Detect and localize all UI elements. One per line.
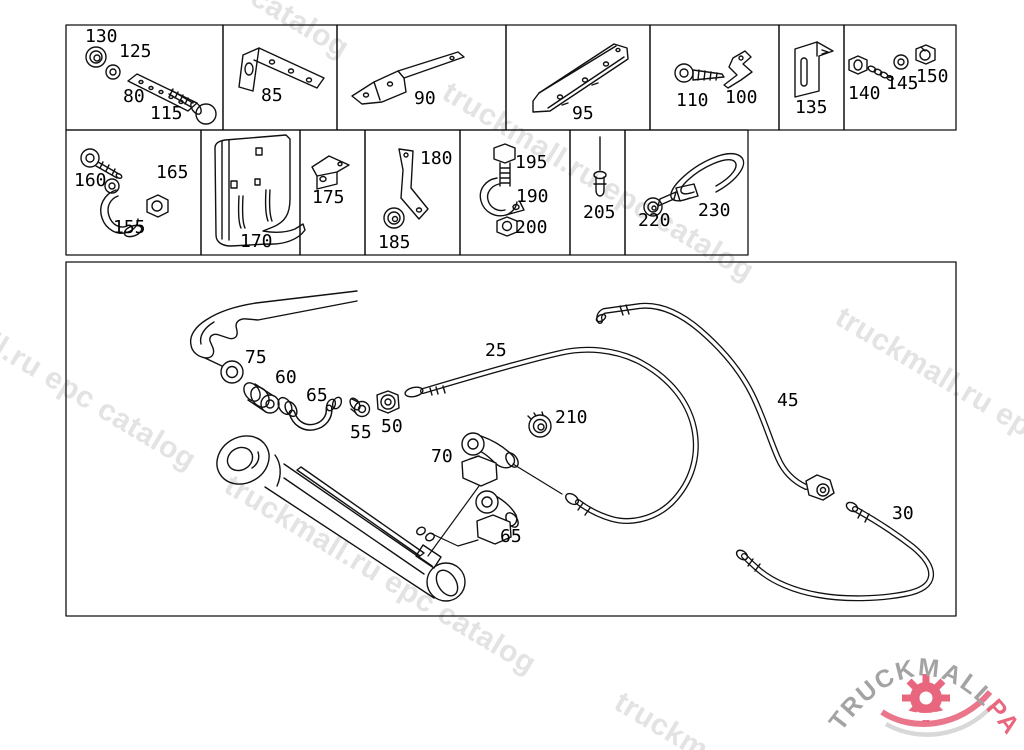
thumbnail-part-number-85-4[interactable]: 85 [261, 87, 283, 105]
diagram-part-number-30-10[interactable]: 30 [892, 505, 914, 523]
nut-55 [348, 396, 370, 416]
thumbnail-part-number-135-9[interactable]: 135 [795, 99, 828, 117]
thumbnail-part-number-175-17[interactable]: 175 [312, 189, 345, 207]
part-icon-110-100 [675, 51, 752, 88]
thumbnail-part-number-230-25[interactable]: 230 [698, 202, 731, 220]
main-diagram-box [66, 262, 956, 616]
diagram-part-number-70-7[interactable]: 70 [431, 448, 453, 466]
hydraulic-cylinder [208, 427, 465, 601]
thumbnail-part-number-205-23[interactable]: 205 [583, 204, 616, 222]
thumbnail-part-number-200-22[interactable]: 200 [515, 219, 548, 237]
parts-box-14 [625, 130, 748, 255]
thumbnail-part-number-190-21[interactable]: 190 [516, 188, 549, 206]
thumbnail-part-number-160-13[interactable]: 160 [74, 172, 107, 190]
part-icon-170 [215, 135, 305, 246]
part-icon-95 [533, 44, 628, 112]
part-icon-175 [312, 156, 349, 189]
thumbnail-part-number-90-5[interactable]: 90 [414, 90, 436, 108]
thumbnail-part-number-130-0[interactable]: 130 [85, 28, 118, 46]
thumbnail-part-number-95-6[interactable]: 95 [572, 105, 594, 123]
thumbnail-part-number-80-2[interactable]: 80 [123, 88, 145, 106]
part-icon-205 [594, 137, 606, 196]
fitting-75-ring [221, 361, 243, 383]
thumbnail-part-number-110-7[interactable]: 110 [676, 92, 709, 110]
thumbnail-part-number-220-24[interactable]: 220 [638, 212, 671, 230]
diagram-part-number-55-3[interactable]: 55 [350, 424, 372, 442]
diagram-part-number-50-4[interactable]: 50 [381, 418, 403, 436]
thumbnail-part-number-155-15[interactable]: 155 [113, 219, 146, 237]
thumbnail-part-number-195-20[interactable]: 195 [515, 154, 548, 172]
diagram-part-number-60-1[interactable]: 60 [275, 369, 297, 387]
thumbnail-part-number-185-19[interactable]: 185 [378, 234, 411, 252]
thumbnail-part-number-145-11[interactable]: 145 [886, 75, 919, 93]
part-icon-135 [795, 42, 833, 97]
epc-catalog-page: truckmall.ru epc catalogtruckmall.ru epc… [0, 0, 1024, 750]
fitting-70-elbow [462, 433, 521, 486]
nut-50 [377, 391, 399, 413]
fitting-60 [241, 380, 279, 413]
diagram-part-number-65-2[interactable]: 65 [306, 387, 328, 405]
diagram-part-number-210-6[interactable]: 210 [555, 409, 588, 427]
thumbnail-part-number-100-8[interactable]: 100 [725, 89, 758, 107]
diagram-part-number-25-5[interactable]: 25 [485, 342, 507, 360]
parts-box-13 [570, 130, 625, 255]
thumbnail-part-number-125-1[interactable]: 125 [119, 43, 152, 61]
diagram-part-number-45-9[interactable]: 45 [777, 392, 799, 410]
parts-box-3 [337, 25, 506, 130]
thumbnail-part-number-170-16[interactable]: 170 [240, 233, 273, 251]
grommet-210 [528, 412, 551, 437]
truckmall-logo[interactable]: TRUCKMALLPARTS [824, 634, 1022, 748]
thumbnail-part-number-140-10[interactable]: 140 [848, 85, 881, 103]
hose-25 [404, 350, 696, 521]
part-icon-90 [352, 52, 464, 104]
thumbnail-part-number-115-3[interactable]: 115 [150, 105, 183, 123]
diagram-part-number-75-0[interactable]: 75 [245, 349, 267, 367]
truckmall-logo-graphic: TRUCKMALLPARTS [824, 634, 1022, 748]
thumbnail-part-number-150-12[interactable]: 150 [916, 68, 949, 86]
thumbnail-part-number-165-14[interactable]: 165 [156, 164, 189, 182]
thumbnail-part-number-180-18[interactable]: 180 [420, 150, 453, 168]
frame-bracket-outline [191, 291, 357, 366]
diagram-part-number-65-8[interactable]: 65 [500, 528, 522, 546]
